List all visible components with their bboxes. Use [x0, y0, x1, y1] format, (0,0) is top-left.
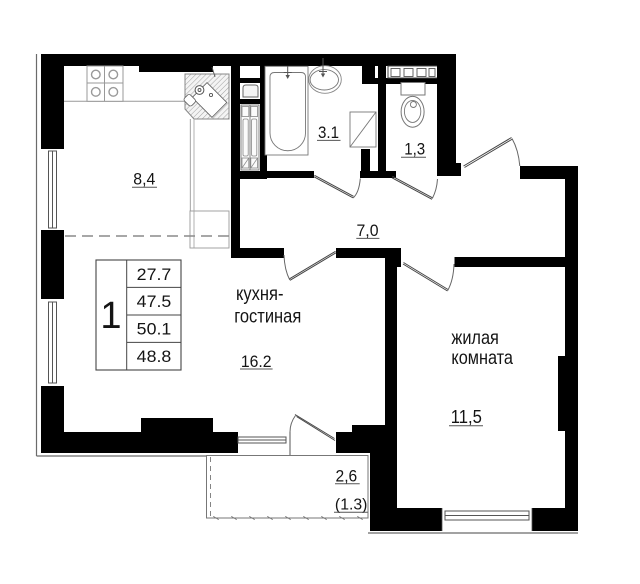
svg-text:47.5: 47.5: [137, 292, 172, 311]
svg-text:жилая: жилая: [451, 327, 499, 349]
svg-text:1: 1: [100, 295, 121, 337]
svg-text:3.1: 3.1: [318, 123, 339, 142]
svg-text:27.7: 27.7: [137, 265, 172, 284]
svg-text:16.2: 16.2: [241, 352, 272, 371]
svg-text:комната: комната: [451, 347, 513, 369]
svg-text:11,5: 11,5: [451, 406, 482, 427]
svg-text:1,3: 1,3: [404, 139, 425, 158]
svg-text:(1.3): (1.3): [335, 497, 368, 514]
svg-text:2,6: 2,6: [336, 467, 358, 486]
svg-text:кухня-: кухня-: [236, 283, 284, 305]
svg-text:гостиная: гостиная: [234, 305, 301, 327]
svg-text:7,0: 7,0: [357, 221, 379, 240]
svg-text:8,4: 8,4: [133, 170, 155, 189]
svg-text:48.8: 48.8: [137, 347, 172, 366]
svg-text:50.1: 50.1: [137, 320, 172, 339]
